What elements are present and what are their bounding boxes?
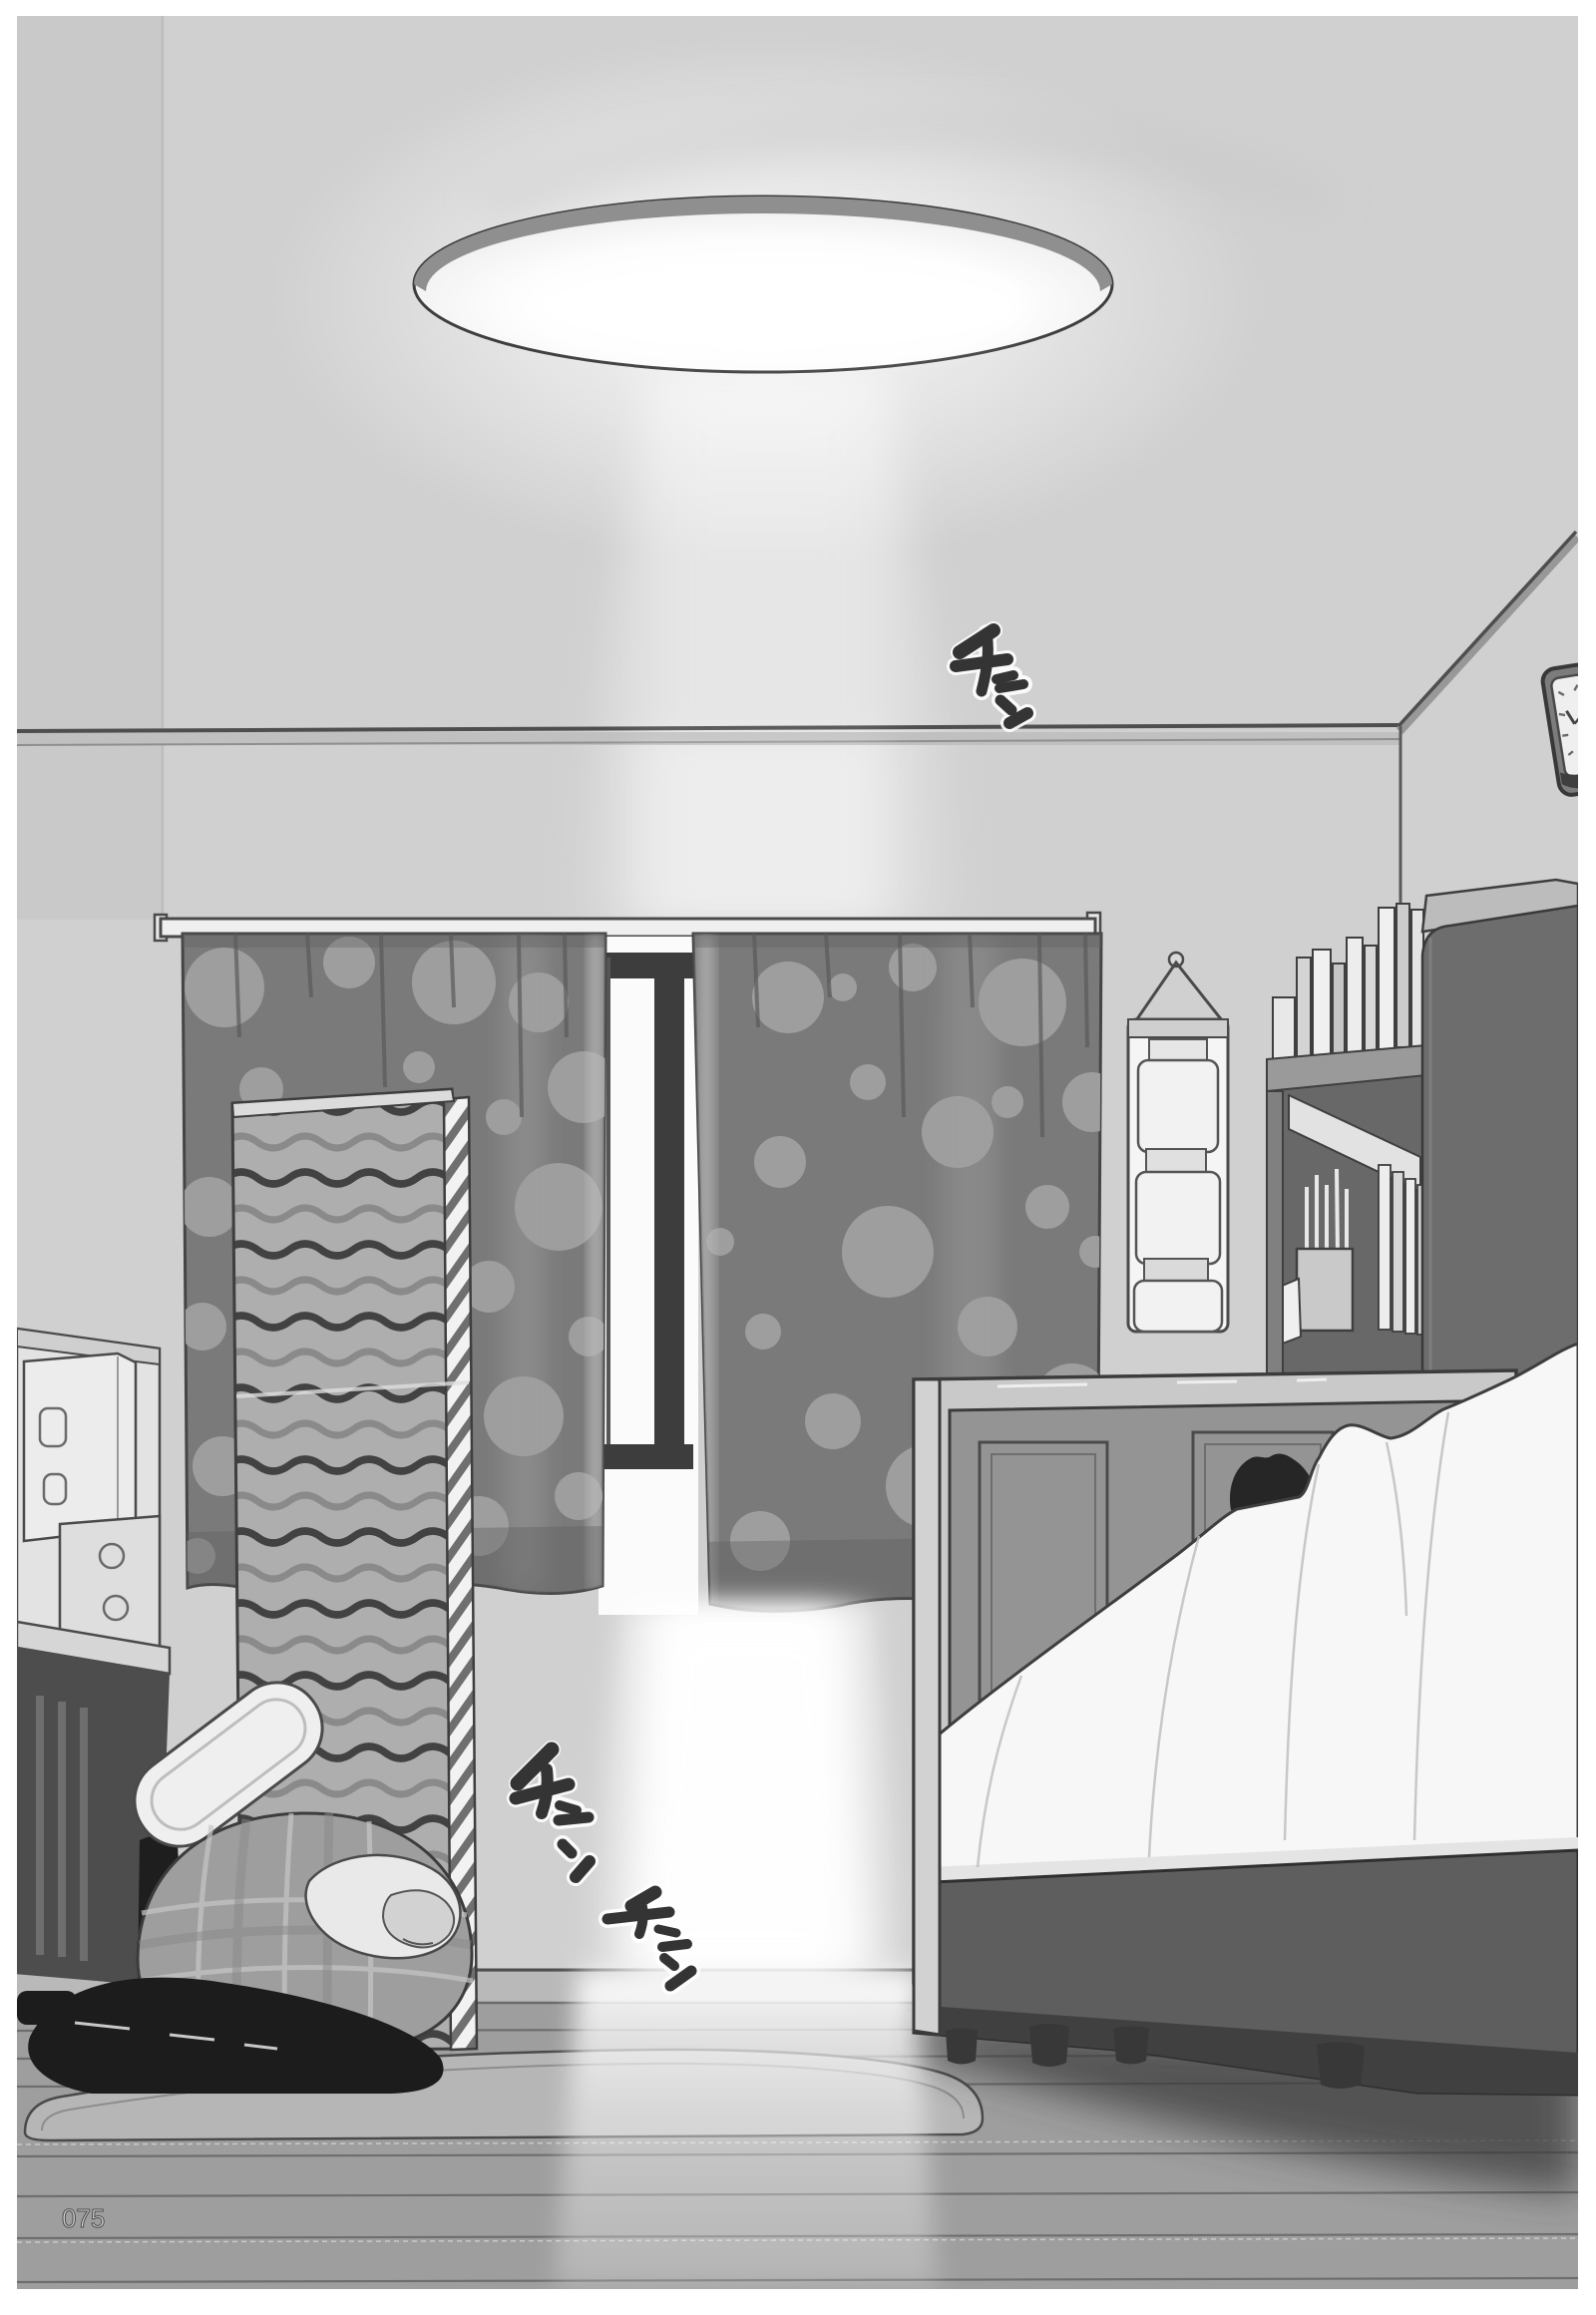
- svg-text:075: 075: [62, 2203, 105, 2233]
